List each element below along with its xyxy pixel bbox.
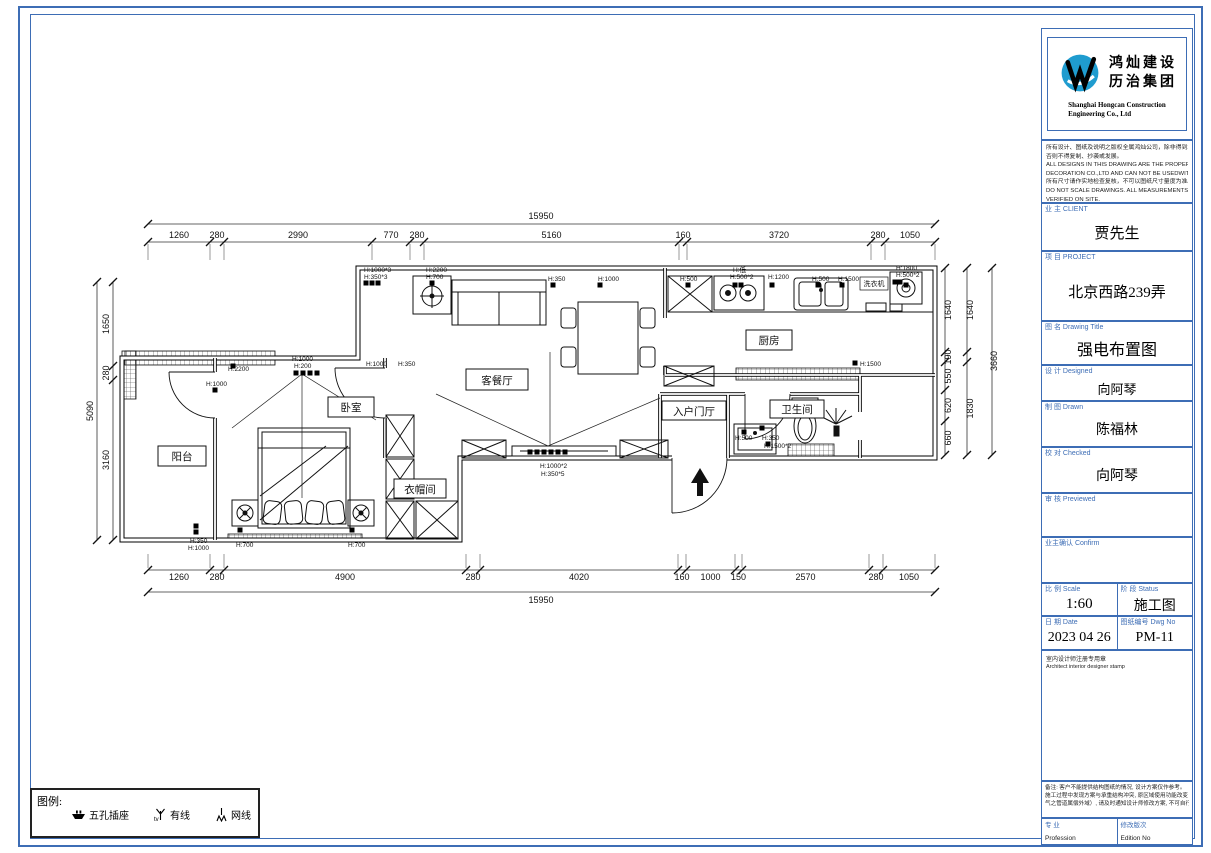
socket-icon [70, 809, 87, 822]
previewed-value [1042, 504, 1192, 536]
height-annotation: H:低 [733, 265, 747, 274]
dimension-label: 3660 [989, 351, 999, 371]
socket-symbol [542, 450, 547, 455]
height-annotation: H:350 [398, 361, 416, 368]
socket-symbol [816, 283, 821, 288]
socket-symbol [551, 283, 556, 288]
date-value: 2023 04 26 [1042, 627, 1117, 649]
dimension-label: 280 [870, 230, 885, 240]
checked-box: 校 对 Checked 向阿琴 [1041, 447, 1193, 493]
edition-box: 修改版次 Edition No [1117, 819, 1193, 844]
edition-label-cn: 修改版次 [1118, 819, 1193, 832]
designed-box: 设 计 Designed 向阿琴 [1041, 365, 1193, 401]
dimension-label: 280 [868, 572, 883, 582]
disclaimer-line: 所有尺寸请作实地检查复核，不可以图纸尺寸量度为准。 [1046, 178, 1188, 187]
room-labels: 阳台 卧室 客餐厅 入户门厅 厨房 卫生间 衣帽间 洗衣机 [158, 277, 888, 498]
socket-symbol [598, 283, 603, 288]
remark-line: 备注: 客户不能提供结构图纸的情况, 设计方案仅作参考。 [1045, 784, 1189, 792]
dining-table [561, 302, 655, 374]
socket-symbol [364, 281, 369, 286]
client-value: 贾先生 [1042, 214, 1192, 250]
drawing-title-value: 强电布置图 [1042, 332, 1192, 364]
socket-symbol [733, 283, 738, 288]
height-annotation: H:350 [762, 435, 780, 442]
height-annotation: H:500*2 [896, 272, 920, 279]
room-label-balcony: 阳台 [172, 450, 193, 463]
dimension-label: 3160 [101, 450, 111, 470]
dwg-label: 图纸编号 Dwg No [1118, 617, 1193, 627]
height-annotation: H:350 [548, 276, 566, 283]
disclaimer-line: ALL DESIGNS IN THIS DRAWING ARE THE PROP… [1046, 161, 1188, 170]
dimension-label: 2990 [288, 230, 308, 240]
disclaimer-line: DECORATION CO.,LTD AND CAN NOT BE USEDWI… [1046, 170, 1188, 179]
dimension-label: 1050 [900, 230, 920, 240]
company-box: 鸿灿建设 历治集团 Shanghai Hongcan Construction … [1041, 28, 1193, 140]
legend-item-socket: 五孔插座 [70, 807, 129, 822]
dimension-label: 1260 [169, 230, 189, 240]
dwg-box: 图纸编号 Dwg No PM-11 [1117, 617, 1193, 649]
height-annotation: H:2200 [426, 267, 447, 274]
height-annotation: H:1000 [206, 381, 227, 388]
socket-symbol [294, 371, 299, 376]
company-name-cn-1: 鸿灿建设 [1109, 54, 1177, 73]
height-annotation: H:1000 [366, 361, 387, 368]
room-label-foyer: 入户门厅 [673, 405, 715, 418]
dimension-label: 1260 [169, 572, 189, 582]
company-name-en-1: Shanghai Hongcan Construction [1068, 101, 1166, 110]
remark-box: 备注: 客户不能提供结构图纸的情况, 设计方案仅作参考。 施工过程中发现方案与承… [1041, 781, 1193, 818]
edition-label-en: Edition No [1118, 832, 1193, 845]
legend-item-lan: 网线 [214, 807, 251, 822]
scale-value: 1:60 [1042, 594, 1117, 615]
svg-text:tv: tv [154, 817, 159, 822]
client-box: 业 主 CLIENT 贾先生 [1041, 203, 1193, 251]
dimension-label: 770 [383, 230, 398, 240]
dimension-label: 5090 [85, 401, 95, 421]
previewed-box: 审 核 Previewed [1041, 493, 1193, 537]
height-annotation: H:1000 [598, 276, 619, 283]
remark-line: 气之管道属偿外域）, 请及时通知设计师修改方案, 不可自行处理。 [1045, 800, 1189, 808]
socket-symbol [194, 530, 199, 535]
socket-symbol [766, 442, 771, 447]
wardrobe-cabinets [386, 415, 458, 539]
company-logo [1057, 50, 1103, 96]
height-annotation: H:500 [812, 276, 830, 283]
room-label-living: 客餐厅 [481, 374, 513, 387]
dimension-label: 280 [409, 230, 424, 240]
room-label-bath: 卫生间 [781, 403, 813, 416]
dimension-label: 280 [209, 230, 224, 240]
socket-symbol [315, 371, 320, 376]
socket-symbol [238, 528, 243, 533]
status-value: 施工图 [1118, 594, 1193, 615]
socket-symbol [549, 450, 554, 455]
socket-symbol [853, 361, 858, 366]
socket-symbol [686, 283, 691, 288]
dimension-label: 15950 [528, 211, 553, 221]
height-annotation: H:500 [735, 435, 753, 442]
height-annotation: H:700 [348, 542, 366, 549]
dimension-label: 1650 [101, 314, 111, 334]
dimension-label: 280 [209, 572, 224, 582]
tv-icon: tv [153, 807, 168, 822]
remark-line: 施工过程中发现方案与承重结构冲突, 原区域使用功能改变（尤其燃 [1045, 792, 1189, 800]
stamp-box: 室内设计师注册专用章 Architect interior designer s… [1041, 650, 1193, 781]
profession-box: 专 业 Profession [1042, 819, 1117, 844]
nightstand-right [348, 500, 374, 526]
confirm-label: 业主确认 Confirm [1042, 538, 1192, 548]
date-dwg-row: 日 期 Date 2023 04 26 图纸编号 Dwg No PM-11 [1041, 616, 1193, 650]
tv-cabinets [462, 440, 668, 458]
confirm-box: 业主确认 Confirm [1041, 537, 1193, 583]
dimension-label: 660 [943, 430, 953, 445]
disclaimer-box: 所有设计、图纸及说明之版权全属鸿灿公司，除非得到本公司书面同意， 否则不得复制、… [1041, 140, 1193, 203]
socket-symbol [563, 450, 568, 455]
profession-edition-row: 专 业 Profession 修改版次 Edition No [1041, 818, 1193, 845]
dimension-label: 4020 [569, 572, 589, 582]
socket-symbol [370, 281, 375, 286]
project-label: 项 目 PROJECT [1042, 252, 1192, 262]
room-label-bedroom: 卧室 [341, 401, 362, 414]
socket-symbol [528, 450, 533, 455]
dimension-label: 4900 [335, 572, 355, 582]
previewed-label: 审 核 Previewed [1042, 494, 1192, 504]
dimension-label: 1830 [965, 398, 975, 418]
height-annotation: H:350*3 [364, 274, 388, 281]
height-annotation: H:350*5 [541, 471, 565, 478]
height-annotation: H:1000 [292, 356, 313, 363]
stamp-label-cn: 室内设计师注册专用章 [1042, 651, 1192, 663]
dimension-label: 620 [943, 398, 953, 413]
height-annotation: H:1000*3 [364, 267, 391, 274]
dimension-label: 1050 [899, 572, 919, 582]
socket-symbol [898, 280, 903, 285]
profession-label-en: Profession [1042, 832, 1117, 845]
height-annotation: H:1500 [860, 361, 881, 368]
drawn-box: 制 图 Drawn 陈福林 [1041, 401, 1193, 447]
disclaimer-line: DO NOT SCALE DRAWINGS. ALL MEASUREMENTS … [1046, 187, 1188, 196]
designed-label: 设 计 Designed [1042, 366, 1192, 376]
socket-symbol [739, 283, 744, 288]
project-box: 项 目 PROJECT 北京西路239弄 [1041, 251, 1193, 321]
legend: 图例: 五孔插座 tv 有线 网线 [30, 788, 260, 838]
height-annotation: H:500*2 [730, 274, 754, 281]
height-annotation: H:1000 [188, 545, 209, 552]
socket-symbol [376, 281, 381, 286]
room-label-kitchen: 厨房 [759, 334, 780, 347]
room-label-washer: 洗衣机 [864, 279, 885, 288]
height-annotation: H:500 [680, 276, 698, 283]
dimension-label: 3720 [769, 230, 789, 240]
drawing-title-box: 图 名 Drawing Title 强电布置图 [1041, 321, 1193, 365]
floor-plan: 阳台 卧室 客餐厅 入户门厅 厨房 卫生间 衣帽间 洗衣机 1260280299… [0, 0, 1211, 853]
socket-symbol [535, 450, 540, 455]
pillows [263, 500, 346, 525]
dimension-label: 550 [943, 368, 953, 383]
dimension-label: 1000 [700, 572, 720, 582]
height-annotation: H:350 [190, 538, 208, 545]
dimension-label: 1640 [965, 300, 975, 320]
legend-item-tv: tv 有线 [153, 807, 190, 822]
dimension-label: 2570 [795, 572, 815, 582]
designed-value: 向阿琴 [1042, 376, 1192, 400]
drawn-label: 制 图 Drawn [1042, 402, 1192, 412]
drawn-value: 陈福林 [1042, 412, 1192, 446]
status-label: 阶 段 Status [1118, 584, 1193, 594]
height-annotation: H:1000*2 [540, 463, 567, 470]
title-block: 鸿灿建设 历治集团 Shanghai Hongcan Construction … [1041, 28, 1193, 845]
height-annotation: H:200 [294, 363, 312, 370]
socket-symbol [556, 450, 561, 455]
checked-label: 校 对 Checked [1042, 448, 1192, 458]
lan-icon [214, 807, 229, 822]
entry-arrow [691, 468, 709, 496]
drawing-title-label: 图 名 Drawing Title [1042, 322, 1192, 332]
legend-label: 五孔插座 [89, 807, 129, 822]
checked-value: 向阿琴 [1042, 458, 1192, 492]
socket-symbol [194, 524, 199, 529]
socket-symbol [742, 430, 747, 435]
height-annotation: H:1800 [896, 265, 917, 272]
socket-symbol [231, 364, 236, 369]
height-annotation: H:700 [426, 274, 444, 281]
confirm-value [1042, 548, 1192, 582]
dimension-label: 280 [101, 365, 111, 380]
scale-label: 比 例 Scale [1042, 584, 1117, 594]
nightstand-left [232, 500, 258, 526]
status-box: 阶 段 Status 施工图 [1117, 584, 1193, 615]
height-annotation: H:1500 [838, 276, 859, 283]
dimension-label: 280 [465, 572, 480, 582]
project-value: 北京西路239弄 [1042, 262, 1192, 320]
scale-box: 比 例 Scale 1:60 [1042, 584, 1117, 615]
height-annotation: H:1200 [768, 274, 789, 281]
dimension-label: 5160 [541, 230, 561, 240]
legend-label: 有线 [170, 807, 190, 822]
bed [258, 428, 350, 528]
disclaimer-line: 否则不得复制、抄袭或发展。 [1046, 153, 1188, 162]
profession-label-cn: 专 业 [1042, 819, 1117, 832]
dwg-value: PM-11 [1118, 627, 1193, 649]
legend-label: 网线 [231, 807, 251, 822]
dimension-label: 1640 [943, 300, 953, 320]
stamp-label-en: Architect interior designer stamp [1042, 663, 1192, 671]
socket-symbol [350, 528, 355, 533]
company-name-cn-2: 历治集团 [1109, 73, 1177, 92]
socket-symbol [770, 283, 775, 288]
socket-symbol [430, 281, 435, 286]
scale-status-row: 比 例 Scale 1:60 阶 段 Status 施工图 [1041, 583, 1193, 616]
disclaimer-line: 所有设计、图纸及说明之版权全属鸿灿公司，除非得到本公司书面同意， [1046, 144, 1188, 153]
date-label: 日 期 Date [1042, 617, 1117, 627]
socket-symbol [904, 283, 909, 288]
shower [820, 408, 852, 436]
socket-symbol [308, 371, 313, 376]
date-box: 日 期 Date 2023 04 26 [1042, 617, 1117, 649]
room-label-cloak: 衣帽间 [404, 483, 436, 496]
socket-symbol [840, 283, 845, 288]
sofa [452, 280, 546, 325]
height-annotation: H:700 [236, 542, 254, 549]
socket-symbol [760, 426, 765, 431]
client-label: 业 主 CLIENT [1042, 204, 1192, 214]
socket-symbol [893, 280, 898, 285]
company-name-en-2: Engineering Co., Ltd [1068, 110, 1166, 119]
socket-symbol [213, 388, 218, 393]
socket-symbol [301, 371, 306, 376]
dimension-label: 15950 [528, 595, 553, 605]
